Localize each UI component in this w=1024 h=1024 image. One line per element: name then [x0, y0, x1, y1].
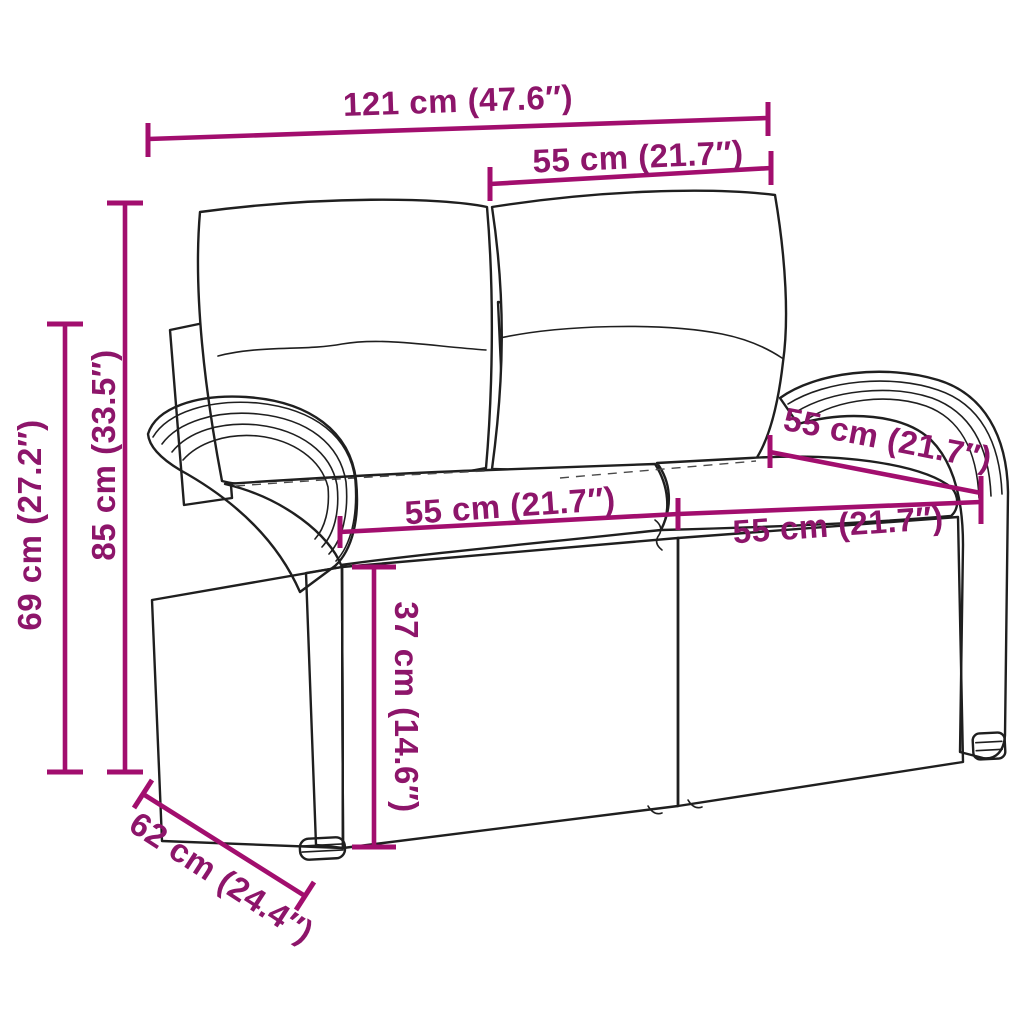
base-side-left-corner-strip [306, 567, 343, 848]
diagram-canvas: 121 cm (47.6″) 55 cm (21.7″) 85 cm (33.5… [0, 0, 1024, 1024]
dimension-overall-depth-label: 62 cm (24.4″) [123, 804, 320, 950]
dimension-overall-depth: 62 cm (24.4″) [123, 780, 320, 950]
dimension-overall-width-label: 121 cm (47.6″) [342, 78, 573, 123]
dimension-seat-height-label: 37 cm (14.6″) [388, 601, 425, 812]
back-cushion-right [492, 191, 786, 470]
dimension-overall-height: 85 cm (33.5″) [85, 203, 143, 772]
dimension-overall-height-label: 85 cm (33.5″) [85, 349, 122, 560]
base-front-right [678, 517, 963, 806]
dimension-side-height: 69 cm (27.2″) [11, 324, 83, 772]
dimension-side-height-label: 69 cm (27.2″) [11, 419, 48, 630]
dimension-seat-height: 37 cm (14.6″) [352, 567, 425, 847]
bench-dimension-svg: 121 cm (47.6″) 55 cm (21.7″) 85 cm (33.5… [0, 0, 1024, 1024]
